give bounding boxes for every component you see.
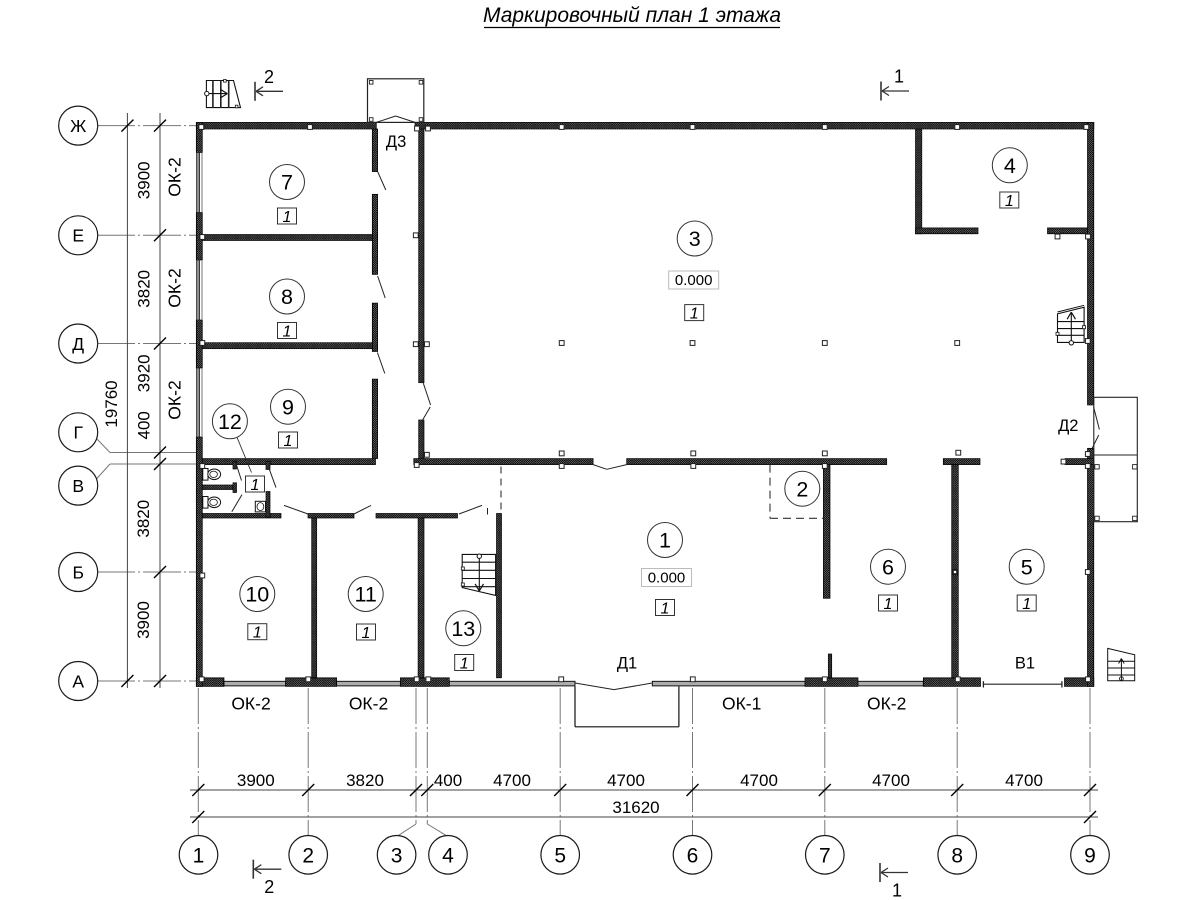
svg-text:11: 11 bbox=[355, 583, 377, 607]
svg-text:1: 1 bbox=[659, 529, 671, 553]
svg-text:Б: Б bbox=[72, 562, 83, 582]
svg-text:В: В bbox=[72, 476, 84, 496]
svg-text:ОК-2: ОК-2 bbox=[165, 380, 185, 419]
svg-text:1: 1 bbox=[460, 655, 469, 672]
svg-text:ОК-2: ОК-2 bbox=[867, 694, 906, 714]
svg-text:3920: 3920 bbox=[135, 354, 154, 392]
svg-text:1: 1 bbox=[283, 209, 292, 226]
svg-text:А: А bbox=[72, 671, 84, 691]
svg-text:5: 5 bbox=[554, 844, 566, 867]
svg-text:3900: 3900 bbox=[237, 771, 275, 790]
svg-text:6: 6 bbox=[687, 844, 699, 867]
svg-text:1: 1 bbox=[193, 844, 205, 867]
svg-text:ОК-2: ОК-2 bbox=[165, 268, 185, 307]
svg-text:31620: 31620 bbox=[612, 798, 659, 817]
svg-text:4700: 4700 bbox=[493, 771, 531, 790]
svg-text:12: 12 bbox=[218, 410, 242, 434]
svg-text:4: 4 bbox=[1004, 154, 1016, 178]
svg-text:Д1: Д1 bbox=[617, 655, 637, 673]
svg-text:9: 9 bbox=[1084, 844, 1096, 867]
svg-text:ОК-2: ОК-2 bbox=[231, 694, 270, 714]
svg-text:4700: 4700 bbox=[607, 771, 645, 790]
svg-text:3820: 3820 bbox=[346, 771, 384, 790]
svg-text:400: 400 bbox=[135, 411, 154, 439]
svg-text:1: 1 bbox=[884, 596, 893, 613]
svg-text:1: 1 bbox=[251, 477, 260, 494]
svg-text:7: 7 bbox=[281, 171, 293, 195]
svg-text:7: 7 bbox=[819, 844, 831, 867]
svg-text:2: 2 bbox=[796, 477, 808, 501]
svg-text:0.000: 0.000 bbox=[648, 570, 686, 587]
svg-text:Г: Г bbox=[73, 423, 83, 443]
svg-text:Маркировочный план 1 этажа: Маркировочный план 1 этажа bbox=[483, 4, 781, 27]
svg-text:3900: 3900 bbox=[135, 161, 154, 199]
svg-text:4700: 4700 bbox=[872, 771, 910, 790]
svg-text:1: 1 bbox=[1005, 193, 1014, 210]
svg-text:13: 13 bbox=[451, 617, 475, 641]
svg-text:1: 1 bbox=[1022, 596, 1031, 613]
svg-text:1: 1 bbox=[283, 323, 292, 340]
svg-text:2: 2 bbox=[264, 67, 274, 87]
svg-text:4700: 4700 bbox=[1005, 771, 1043, 790]
svg-text:9: 9 bbox=[282, 395, 294, 419]
svg-text:10: 10 bbox=[245, 583, 269, 607]
svg-text:2: 2 bbox=[264, 877, 274, 897]
svg-text:4700: 4700 bbox=[740, 771, 778, 790]
svg-text:1: 1 bbox=[894, 67, 904, 87]
svg-text:Е: Е bbox=[72, 226, 84, 246]
svg-text:0.000: 0.000 bbox=[675, 272, 713, 289]
svg-text:400: 400 bbox=[434, 771, 462, 790]
svg-text:2: 2 bbox=[302, 844, 314, 867]
svg-text:1: 1 bbox=[284, 433, 293, 450]
svg-text:8: 8 bbox=[951, 844, 963, 867]
svg-text:В1: В1 bbox=[1015, 655, 1035, 673]
svg-text:1: 1 bbox=[690, 305, 699, 322]
svg-text:3: 3 bbox=[391, 844, 403, 867]
svg-text:4: 4 bbox=[442, 844, 454, 867]
svg-text:1: 1 bbox=[362, 625, 371, 642]
svg-text:19760: 19760 bbox=[102, 380, 121, 427]
svg-text:Д: Д bbox=[72, 334, 84, 354]
svg-text:Д3: Д3 bbox=[386, 133, 406, 151]
svg-text:3820: 3820 bbox=[135, 270, 154, 308]
svg-text:3: 3 bbox=[689, 227, 701, 251]
svg-text:5: 5 bbox=[1021, 555, 1033, 579]
svg-text:Д2: Д2 bbox=[1058, 417, 1078, 435]
svg-text:3820: 3820 bbox=[134, 500, 153, 538]
svg-text:3900: 3900 bbox=[134, 601, 153, 639]
svg-text:ОК-2: ОК-2 bbox=[165, 157, 185, 196]
svg-text:1: 1 bbox=[661, 600, 670, 617]
svg-text:Ж: Ж bbox=[70, 116, 86, 136]
svg-text:8: 8 bbox=[281, 285, 293, 309]
svg-text:ОК-2: ОК-2 bbox=[349, 694, 388, 714]
svg-text:ОК-1: ОК-1 bbox=[722, 694, 761, 714]
svg-text:6: 6 bbox=[882, 555, 894, 579]
svg-text:1: 1 bbox=[253, 625, 262, 642]
svg-text:1: 1 bbox=[892, 881, 902, 900]
